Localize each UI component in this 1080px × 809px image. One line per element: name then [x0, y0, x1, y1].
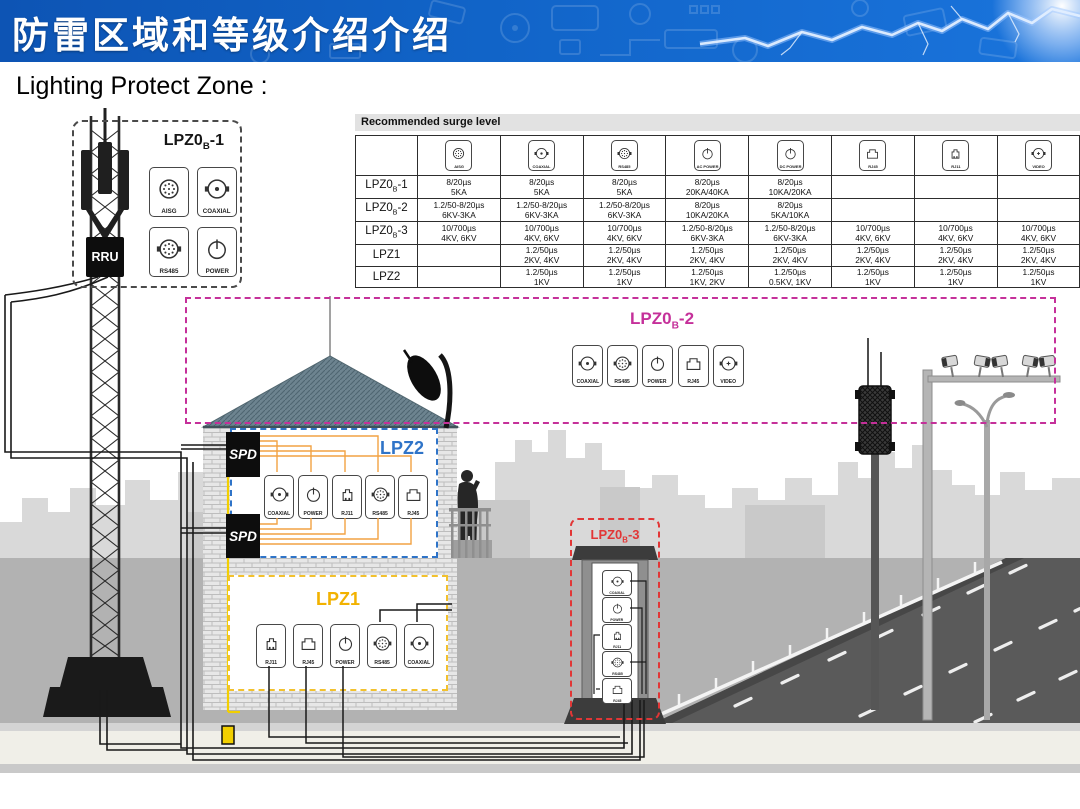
surge-cell: 1.2/50µs2KV, 4KV [831, 245, 914, 267]
column-coaxial: COAXIAL [500, 136, 583, 176]
power-port: POWER [330, 624, 360, 668]
port-label: POWER [205, 268, 228, 275]
rj11-icon [944, 143, 967, 164]
power-icon [300, 478, 326, 511]
surge-cell: 1.2/50-8/20µs6KV-3KA [666, 222, 749, 245]
rs485-port: RS485 [149, 227, 189, 277]
port-label: COAXIAL [408, 660, 431, 666]
power-icon [332, 627, 358, 660]
surge-table: AISGCOAXIALRS485AC POWERDC POWERRJ45RJ11… [355, 135, 1080, 288]
zone-lpz0b2: LPZ0B-2 COAXIALRS485POWERRJ45VIDEO [185, 297, 1056, 424]
surge-cell: 1.2/50µs1KV, 2KV [666, 266, 749, 288]
zone-title: LPZ0B-2 [630, 309, 694, 331]
rs485-port: RS485 [367, 624, 397, 668]
dc-power-port: DC POWER [777, 140, 804, 171]
ac-power-icon [696, 143, 719, 164]
surge-cell [831, 176, 914, 199]
rs485-icon [369, 627, 395, 660]
rs485-port: RS485 [611, 140, 638, 171]
port-label: RS485 [615, 379, 630, 385]
table-row: LPZ0B-21.2/50-8/20µs6KV-3KA1.2/50-8/20µs… [356, 199, 1080, 222]
street-lamp [955, 392, 1016, 720]
row-label: LPZ1 [356, 245, 418, 267]
surge-cell: 1.2/50µs1KV [831, 266, 914, 288]
port-label: DC POWER [779, 164, 801, 169]
video-port: VIDEO [1025, 140, 1052, 171]
zone-title: LPZ1 [230, 589, 446, 610]
coaxial-port: COAXIAL [404, 624, 434, 668]
column-ac-power: AC POWER [666, 136, 749, 176]
coaxial-icon [199, 170, 235, 208]
row-label: LPZ2 [356, 266, 418, 288]
sidewalk-edge [0, 764, 1080, 773]
port-label: POWER [611, 618, 624, 622]
rj11-port: RJ11 [942, 140, 969, 171]
page-title: 防雷区域和等级介绍介绍 [12, 5, 452, 59]
slide: 防雷区域和等级介绍介绍 Lighting Protect Zone : [0, 0, 1080, 809]
road-edge-shadow [652, 558, 1024, 724]
city-skyline [0, 430, 1080, 558]
column-rj45: RJ45 [831, 136, 914, 176]
column-rs485: RS485 [583, 136, 666, 176]
balcony-railing [449, 508, 492, 558]
surge-cell [418, 245, 501, 267]
row-label: LPZ0B-2 [356, 199, 418, 222]
port-label: POWER [303, 511, 322, 517]
table-caption: Recommended surge level [355, 114, 1080, 131]
port-label: VIDEO [721, 379, 737, 385]
zone-lpz0b3: LPZ0B-3 COAXIALPOWERRJ11RS485RJ45 [570, 518, 660, 720]
rj45-icon [680, 348, 707, 379]
port-label: RJ45 [613, 699, 621, 703]
surge-cell: 8/20µs5KA [418, 176, 501, 199]
column-rj11: RJ11 [914, 136, 997, 176]
surge-cell: 1.2/50µs1KV [500, 266, 583, 288]
coaxial-port: COAXIAL [528, 140, 555, 171]
rs485-icon [613, 143, 636, 164]
coaxial-icon [574, 348, 601, 379]
coaxial-port: COAXIAL [572, 345, 603, 387]
zone-lpz1: LPZ1 RJ11RJ45POWERRS485COAXIAL [228, 575, 448, 691]
zone-title: LPZ0B-1 [164, 132, 224, 152]
surge-cell: 1.2/50µs0.5KV, 1KV [749, 266, 832, 288]
aisg-port: AISG [445, 140, 472, 171]
rs485-port: RS485 [602, 651, 632, 677]
aisg-port: AISG [149, 167, 189, 217]
rj45-port: RJ45 [602, 678, 632, 704]
rj45-port: RJ45 [398, 475, 428, 519]
power-port: POWER [602, 597, 632, 623]
surge-cell: 1.2/50µs2KV, 4KV [666, 245, 749, 267]
power-icon [603, 599, 631, 618]
rj45-icon [603, 680, 631, 699]
port-label: AISG [161, 208, 176, 215]
rs485-port: RS485 [607, 345, 638, 387]
surge-cell: 1.2/50µs2KV, 4KV [749, 245, 832, 267]
subtitle: Lighting Protect Zone : [16, 72, 268, 101]
surge-cell: 1.2/50µs1KV [583, 266, 666, 288]
port-label: RJ11 [951, 164, 960, 169]
surge-cell [831, 199, 914, 222]
road [652, 558, 1080, 724]
port-label: COAXIAL [609, 591, 624, 595]
ac-power-port: AC POWER [694, 140, 721, 171]
port-label: RS485 [374, 660, 389, 666]
surge-cell: 1.2/50-8/20µs6KV-3KA [500, 199, 583, 222]
surge-cell [914, 199, 997, 222]
corner-cell [356, 136, 418, 176]
port-label: RJ45 [302, 660, 314, 666]
port-label: RJ45 [407, 511, 419, 517]
video-icon [715, 348, 742, 379]
dc-power-icon [779, 143, 802, 164]
rs485-icon [609, 348, 636, 379]
power-icon [644, 348, 671, 379]
rru-unit: RRU [86, 237, 124, 277]
rj11-icon [334, 478, 360, 511]
port-label: POWER [648, 379, 667, 385]
curb [0, 723, 1080, 731]
rs485-icon [603, 653, 631, 672]
rj11-port: RJ11 [602, 624, 632, 650]
port-label: AISG [454, 164, 464, 169]
spd-box-2: SPD [226, 514, 260, 558]
zone-title: LPZ2 [380, 438, 424, 459]
coaxial-port: COAXIAL [264, 475, 294, 519]
power-port: POWER [197, 227, 237, 277]
rj45-icon [400, 478, 426, 511]
surge-cell: 10/700µs4KV, 6KV [831, 222, 914, 245]
surge-cell: 8/20µs20KA/40KA [666, 176, 749, 199]
ground [0, 558, 1080, 723]
slide-header: 防雷区域和等级介绍介绍 [0, 0, 1080, 62]
zone-title: LPZ0B-3 [572, 527, 658, 545]
rj45-port: RJ45 [293, 624, 323, 668]
surge-cell [914, 176, 997, 199]
sidewalk [0, 731, 1080, 764]
port-label: VIDEO [1032, 164, 1044, 169]
power-port: POWER [642, 345, 673, 387]
surge-cell: 8/20µs5KA [583, 176, 666, 199]
rj11-icon [603, 626, 631, 645]
coaxial-icon [530, 143, 553, 164]
lane-markings [735, 565, 1080, 722]
surge-cell: 10/700µs4KV, 6KV [500, 222, 583, 245]
surge-cell: 8/20µs10KA/20KA [666, 199, 749, 222]
coaxial-icon [266, 478, 292, 511]
port-label: RS485 [618, 164, 630, 169]
row-label: LPZ0B-3 [356, 222, 418, 245]
rs485-icon [151, 230, 187, 268]
port-label: AC POWER [696, 164, 718, 169]
surge-cell: 1.2/50µs2KV, 4KV [500, 245, 583, 267]
surge-cell: 8/20µs5KA [500, 176, 583, 199]
rs485-icon [367, 478, 393, 511]
surge-cell: 1.2/50-8/20µs6KV-3KA [418, 199, 501, 222]
spd-box-1: SPD [226, 432, 260, 477]
video-port: VIDEO [713, 345, 744, 387]
surge-cell [418, 266, 501, 288]
surge-level-panel: Recommended surge level AISGCOAXIALRS485… [355, 114, 1080, 288]
table-row: LPZ21.2/50µs1KV1.2/50µs1KV1.2/50µs1KV, 2… [356, 266, 1080, 288]
column-aisg: AISG [418, 136, 501, 176]
port-label: RS485 [372, 511, 387, 517]
port-label: RS485 [160, 268, 179, 275]
surge-cell: 1.2/50µs1KV [914, 266, 997, 288]
port-label: RJ11 [341, 511, 353, 517]
table-row: LPZ0B-310/700µs4KV, 6KV10/700µs4KV, 6KV1… [356, 222, 1080, 245]
port-label: RS485 [612, 672, 622, 676]
aisg-icon [151, 170, 187, 208]
port-label: COAXIAL [576, 379, 599, 385]
surge-cell [997, 176, 1080, 199]
surge-cell: 8/20µs5KA/10KA [749, 199, 832, 222]
surge-cell: 1.2/50µs1KV [997, 266, 1080, 288]
zone-lpz2: LPZ2 COAXIALPOWERRJ11RS485RJ45 [230, 428, 438, 558]
column-video: VIDEO [997, 136, 1080, 176]
port-label: COAXIAL [268, 511, 291, 517]
coaxial-port: COAXIAL [197, 167, 237, 217]
surge-cell: 1.2/50-8/20µs6KV-3KA [749, 222, 832, 245]
aisg-icon [447, 143, 470, 164]
port-label: COAXIAL [533, 164, 551, 169]
rj11-icon [258, 627, 284, 660]
surge-cell: 8/20µs10KA/20KA [749, 176, 832, 199]
surge-cell: 1.2/50-8/20µs6KV-3KA [583, 199, 666, 222]
surge-cell: 10/700µs4KV, 6KV [583, 222, 666, 245]
coaxial-port: COAXIAL [602, 570, 632, 596]
rj45-icon [861, 143, 884, 164]
rj45-port: RJ45 [859, 140, 886, 171]
rj45-port: RJ45 [678, 345, 709, 387]
power-icon [199, 230, 235, 268]
surge-cell [997, 199, 1080, 222]
person-silhouette [458, 470, 480, 556]
surge-cell: 1.2/50µs2KV, 4KV [997, 245, 1080, 267]
guardrail [648, 562, 1002, 720]
table-row: LPZ0B-18/20µs5KA8/20µs5KA8/20µs5KA8/20µs… [356, 176, 1080, 199]
rj11-port: RJ11 [332, 475, 362, 519]
rj11-port: RJ11 [256, 624, 286, 668]
row-label: LPZ0B-1 [356, 176, 418, 199]
tower-base [43, 657, 171, 717]
coaxial-icon [406, 627, 432, 660]
rs485-port: RS485 [365, 475, 395, 519]
port-label: COAXIAL [203, 208, 231, 215]
port-label: RJ45 [687, 379, 699, 385]
power-port: POWER [298, 475, 328, 519]
surge-cell: 1.2/50µs2KV, 4KV [583, 245, 666, 267]
rj45-icon [295, 627, 321, 660]
port-label: RJ45 [868, 164, 878, 169]
surge-cell: 1.2/50µs2KV, 4KV [914, 245, 997, 267]
column-dc-power: DC POWER [749, 136, 832, 176]
table-row: LPZ11.2/50µs2KV, 4KV1.2/50µs2KV, 4KV1.2/… [356, 245, 1080, 267]
surge-cell: 10/700µs4KV, 6KV [914, 222, 997, 245]
port-label: RJ11 [613, 645, 621, 649]
surge-cell: 10/700µs4KV, 6KV [997, 222, 1080, 245]
coaxial-icon [603, 572, 631, 591]
port-label: RJ11 [265, 660, 277, 666]
surge-cell: 10/700µs4KV, 6KV [418, 222, 501, 245]
video-icon [1027, 143, 1050, 164]
port-label: POWER [335, 660, 354, 666]
